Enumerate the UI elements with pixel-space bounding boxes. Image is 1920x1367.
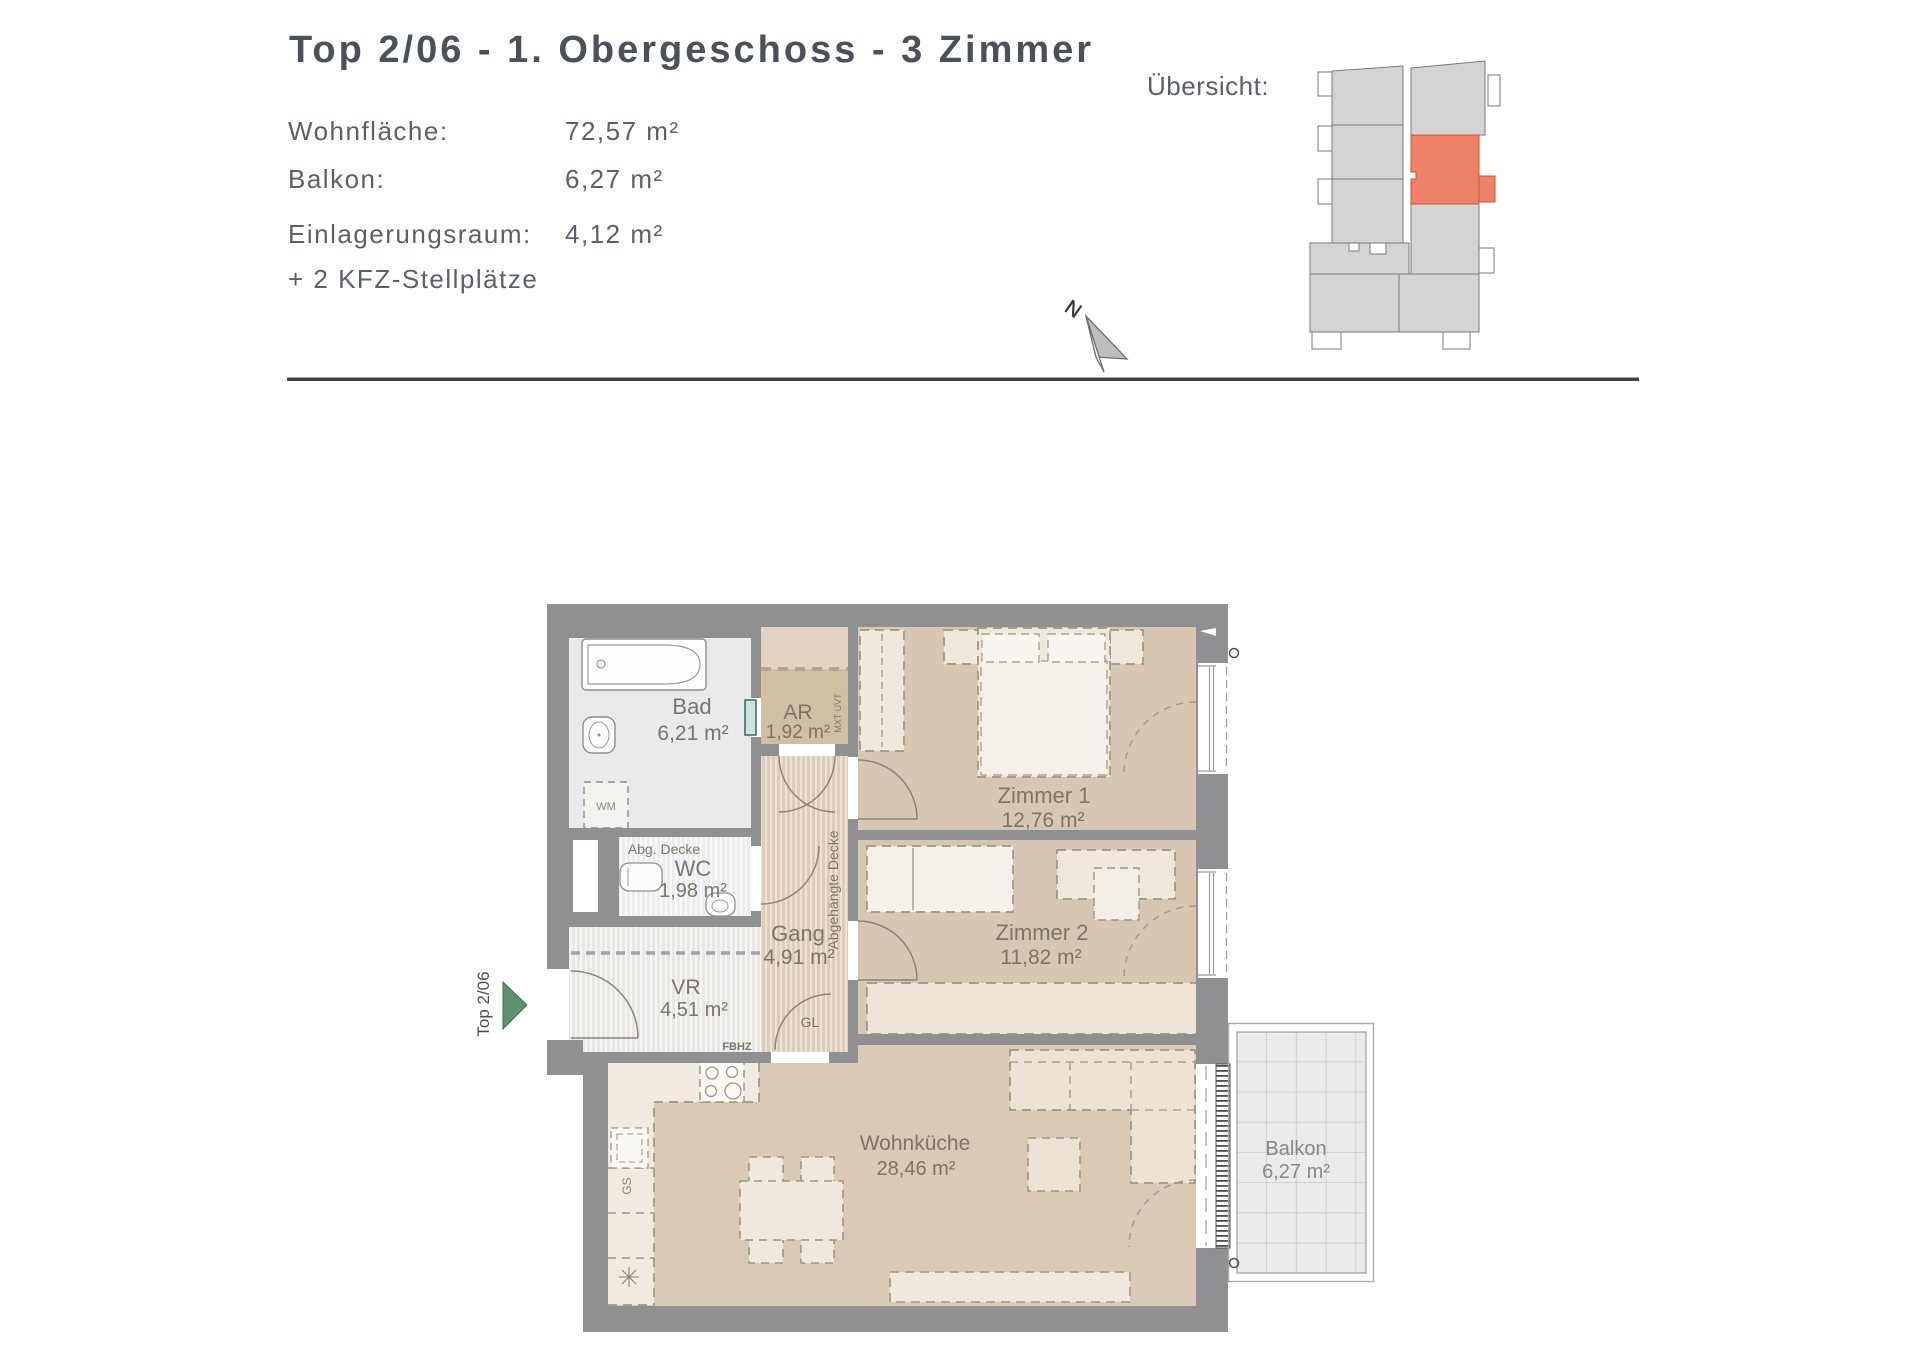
svg-text:GL: GL [801, 1014, 820, 1030]
svg-text:Abg. Decke: Abg. Decke [628, 841, 701, 857]
svg-text:WM: WM [596, 801, 616, 813]
svg-text:6,27 m²: 6,27 m² [565, 164, 664, 194]
svg-text:Bad: Bad [672, 694, 711, 719]
svg-text:11,82 m²: 11,82 m² [1000, 946, 1081, 969]
svg-text:6,27 m²: 6,27 m² [1262, 1161, 1330, 1183]
svg-text:MXT UVT: MXT UVT [833, 693, 843, 733]
svg-text:Zimmer 1: Zimmer 1 [998, 783, 1091, 808]
svg-text:Wohnfläche:: Wohnfläche: [288, 116, 449, 146]
svg-text:12,76 m²: 12,76 m² [1002, 809, 1085, 832]
svg-text:28,46 m²: 28,46 m² [877, 1158, 956, 1180]
svg-text:Balkon: Balkon [1265, 1138, 1326, 1160]
svg-text:FBHZ: FBHZ [722, 1041, 752, 1053]
svg-text:Top 2/06 - 1. Obergeschoss - 3: Top 2/06 - 1. Obergeschoss - 3 Zimmer [289, 29, 1094, 71]
svg-text:AR: AR [783, 701, 812, 724]
svg-text:WC: WC [675, 856, 712, 881]
svg-text:Einlagerungsraum:: Einlagerungsraum: [288, 219, 532, 249]
svg-text:GS: GS [620, 1177, 634, 1194]
svg-text:Gang: Gang [771, 921, 825, 946]
svg-text:Top 2/06: Top 2/06 [474, 971, 493, 1036]
svg-text:1,92 m²: 1,92 m² [766, 722, 830, 743]
svg-text:72,57 m²: 72,57 m² [565, 116, 680, 146]
svg-text:Balkon:: Balkon: [288, 164, 385, 194]
svg-text:Zimmer 2: Zimmer 2 [996, 920, 1089, 945]
svg-text:6,21 m²: 6,21 m² [657, 722, 728, 745]
svg-text:4,91 m²: 4,91 m² [763, 946, 834, 969]
svg-text:4,51 m²: 4,51 m² [660, 999, 728, 1021]
svg-text:Übersicht:: Übersicht: [1147, 71, 1269, 101]
svg-text:4,12 m²: 4,12 m² [565, 219, 664, 249]
svg-text:VR: VR [671, 976, 700, 999]
svg-text:Abgehängte Decke: Abgehängte Decke [825, 830, 841, 949]
svg-text:+ 2 KFZ-Stellplätze: + 2 KFZ-Stellplätze [288, 264, 538, 294]
svg-text:1,98 m²: 1,98 m² [659, 880, 727, 902]
svg-text:Wohnküche: Wohnküche [860, 1132, 971, 1155]
